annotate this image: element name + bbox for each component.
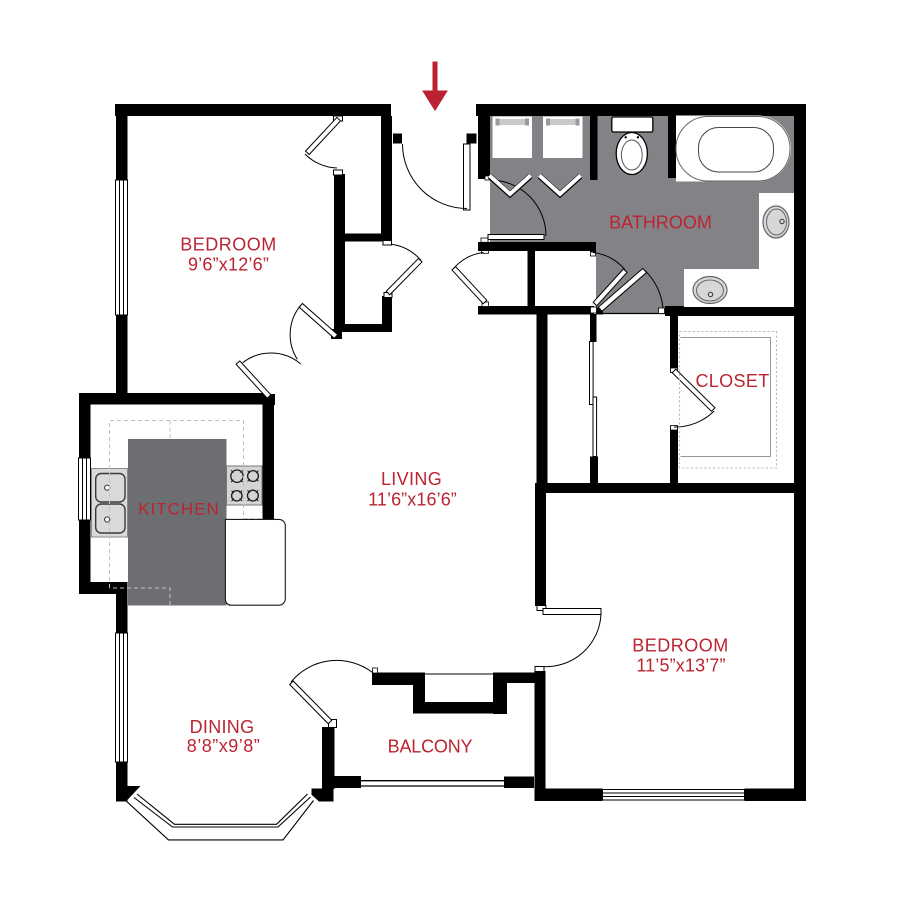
svg-text:8’8”x9’8”: 8’8”x9’8”	[187, 736, 261, 756]
svg-text:11’6”x16’6”: 11’6”x16’6”	[368, 490, 457, 510]
svg-text:BALCONY: BALCONY	[388, 737, 473, 757]
svg-text:BEDROOM: BEDROOM	[180, 235, 277, 255]
svg-text:KITCHEN: KITCHEN	[138, 500, 220, 519]
svg-text:BEDROOM: BEDROOM	[632, 636, 729, 656]
svg-text:LIVING: LIVING	[381, 469, 442, 489]
svg-text:9’6”x12’6”: 9’6”x12’6”	[188, 255, 269, 275]
svg-text:DINING: DINING	[190, 717, 255, 737]
svg-text:BATHROOM: BATHROOM	[609, 213, 712, 233]
svg-text:CLOSET: CLOSET	[695, 371, 769, 391]
svg-text:11’5”x13’7”: 11’5”x13’7”	[636, 656, 725, 676]
